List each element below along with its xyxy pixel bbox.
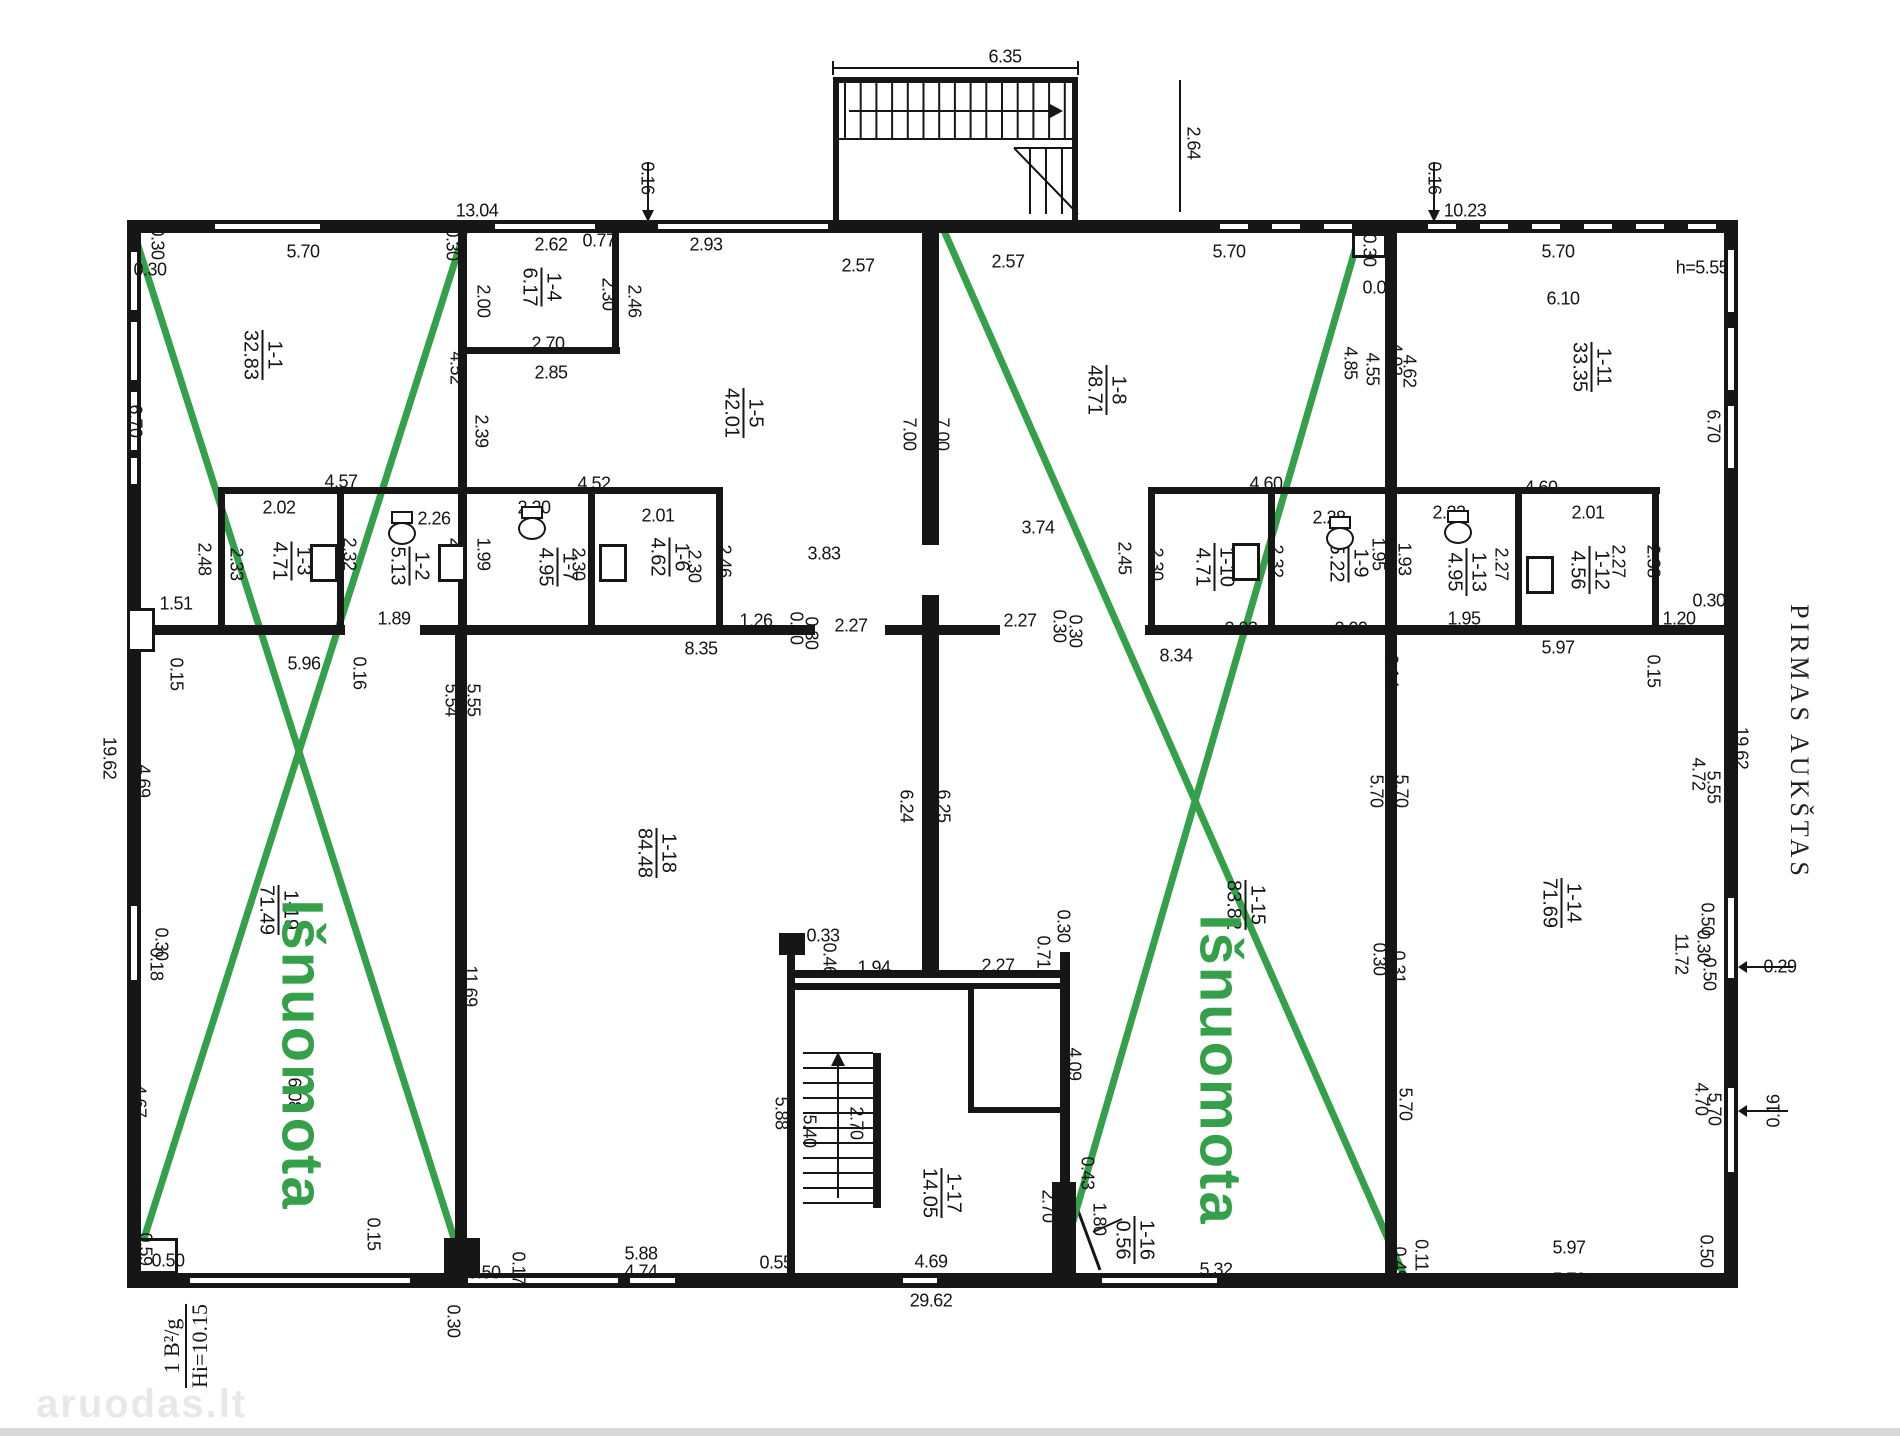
dimension-label: 0.30 — [1692, 591, 1725, 612]
dimension-label: 2.33 — [226, 547, 247, 580]
wall-segment — [1148, 487, 1660, 494]
room-number: 1-1 — [262, 330, 286, 380]
dimension-label: 6.24 — [896, 789, 917, 822]
dimension-label: 8.34 — [1159, 646, 1192, 667]
wall-segment — [873, 1053, 881, 1208]
window-segment — [1726, 1088, 1736, 1172]
wall-segment — [922, 233, 939, 545]
dimension-label: 2.46 — [714, 544, 735, 577]
dimension-label: 4.60 — [1524, 478, 1557, 499]
room-label: 1-134.95 — [1443, 548, 1490, 596]
plan-linework — [0, 0, 1900, 1436]
dimension-label: 0.71 — [1033, 935, 1054, 968]
dimension-label: 0.30 — [443, 1304, 464, 1337]
dimension-label: 2.85 — [534, 363, 567, 384]
dimension-label: 0.16 — [1424, 161, 1445, 194]
room-number: 1-16 — [1134, 1216, 1158, 1264]
dimension-label: 2.02 — [262, 498, 295, 519]
elevator-shaft — [968, 983, 1066, 1113]
dimension-label: 2.27 — [981, 956, 1014, 977]
window-segment — [1584, 222, 1612, 231]
room-area: 14.05 — [918, 1168, 941, 1218]
room-area: 4.95 — [534, 548, 557, 587]
window-segment — [495, 222, 595, 231]
dimension-label: 10.23 — [1444, 201, 1487, 222]
dimension-label: 1.20 — [1662, 609, 1695, 630]
room-label: 1-34.71 — [268, 542, 315, 581]
room-label: 1-1133.35 — [1568, 342, 1615, 392]
wall-segment — [455, 635, 467, 1273]
room-area: 0.56 — [1111, 1216, 1134, 1264]
room-area: 84.48 — [633, 828, 656, 878]
window-segment — [1324, 222, 1352, 231]
dimension-label: 2.70 — [1038, 1189, 1059, 1222]
room-area: 32.83 — [239, 330, 262, 380]
room-area: 4.56 — [1566, 546, 1589, 594]
dimension-label: 4.52 — [446, 351, 467, 384]
dimension-label: 0.14 — [1381, 654, 1402, 687]
dimension-label: 0.77 — [582, 231, 615, 252]
dimension-label: 2.01 — [641, 506, 674, 527]
room-label: 1-848.71 — [1083, 365, 1130, 415]
dimension-label: 4.69 — [914, 1252, 947, 1273]
room-label: 1-132.83 — [239, 330, 286, 380]
room-label: 1-1714.05 — [918, 1168, 965, 1218]
dimension-label: 2.03 — [1224, 619, 1257, 640]
dimension-label: 0.15 — [363, 1217, 384, 1250]
wall-segment — [1515, 487, 1522, 632]
dimension-label: 5.40 — [799, 1114, 820, 1147]
dimension-label: 0.50 — [1696, 1234, 1717, 1267]
dimension-label: 0.30 — [133, 260, 166, 281]
window-segment — [190, 1276, 410, 1285]
room-number: 1-17 — [941, 1168, 965, 1218]
dimension-label: 6.10 — [1546, 289, 1579, 310]
dimension-label: 5.88 — [771, 1096, 792, 1129]
dimension-label: 0.30 — [147, 226, 168, 259]
dimension-label: 5.54 — [441, 683, 462, 716]
wall-segment — [885, 625, 1000, 635]
dimension-label: 2.26 — [417, 509, 450, 530]
corner-note-top: 1 B²/g — [159, 1304, 187, 1388]
wall-segment — [127, 625, 345, 635]
dimension-label: 5.97 — [1541, 638, 1574, 659]
door-panel — [1526, 556, 1554, 594]
room-label: 1-160.56 — [1111, 1216, 1158, 1264]
window-segment — [1726, 406, 1736, 468]
dimension-label: 2.32 — [339, 537, 360, 570]
dimension-label: 5.70 — [286, 242, 319, 263]
room-number: 1-4 — [541, 268, 565, 307]
room-number: 1-18 — [656, 828, 680, 878]
dimension-label: 2.57 — [991, 252, 1024, 273]
dimension-label: 0.16 — [1764, 1094, 1785, 1127]
dimension-label: 1.94 — [857, 958, 890, 979]
dimension-label: 0.30 — [442, 227, 463, 260]
dimension-label: 2.46 — [624, 284, 645, 317]
dimension-label: 2.01 — [1571, 503, 1604, 524]
external-staircase-wall — [833, 77, 839, 223]
page-edge — [0, 1428, 1900, 1436]
dimension-label: 2.27 — [1491, 547, 1512, 580]
dimension-label: 0.11 — [1411, 1239, 1432, 1271]
dimension-label: 2.32 — [1266, 544, 1287, 577]
corner-note: 1 B²/g Hi=10.15 — [159, 1304, 213, 1388]
window-segment — [1532, 222, 1560, 231]
dimension-label: 1.95 — [1447, 609, 1480, 630]
toilet-icon — [1444, 510, 1472, 544]
wall-pier — [127, 608, 155, 652]
dimension-label: 0.50 — [151, 1251, 184, 1272]
dimension-label: 0.18 — [146, 947, 167, 980]
window-segment — [1480, 222, 1508, 231]
room-area: 6.17 — [518, 268, 541, 307]
window-segment — [129, 322, 139, 380]
room-label: 1-124.56 — [1566, 546, 1613, 594]
dimension-label: 5.70 — [1391, 774, 1412, 807]
dimension-label: 5.70 — [1212, 242, 1245, 263]
dimension-label: 1.80 — [1089, 1202, 1110, 1235]
door-panel — [310, 544, 338, 582]
wall-segment — [127, 220, 141, 1288]
dimension-label: 2.38 — [1643, 544, 1664, 577]
room-number: 1-12 — [1589, 546, 1613, 594]
room-label: 1-64.62 — [646, 538, 693, 577]
dimension-label: 4.85 — [1340, 346, 1361, 379]
room-number: 1-7 — [557, 548, 581, 587]
room-area: 4.71 — [1191, 543, 1214, 591]
dimension-label: 2.64 — [1183, 126, 1204, 159]
floor-title: PIRMAS AUKŠTAS — [1784, 604, 1814, 880]
room-number: 1-11 — [1591, 342, 1615, 392]
dimension-label: 4.60 — [1249, 474, 1282, 495]
dimension-label: 2.70 — [846, 1106, 867, 1139]
toilet-icon — [518, 506, 546, 540]
wall-segment — [218, 487, 225, 632]
dimension-label: 5.96 — [287, 654, 320, 675]
window-segment — [1726, 328, 1736, 390]
dimension-label: 5.70 — [1395, 1087, 1416, 1120]
room-area: 33.35 — [1568, 342, 1591, 392]
dimension-label: 1.26 — [739, 611, 772, 632]
room-number: 1-14 — [1561, 878, 1585, 928]
rented-text: Išnuomota — [269, 899, 336, 1210]
room-number: 1-13 — [1466, 548, 1490, 596]
dimension-label: 5.32 — [1199, 1260, 1232, 1281]
room-label: 1-1884.48 — [633, 828, 680, 878]
dimension-label: 2.39 — [471, 414, 492, 447]
dimension-label: 4.74 — [624, 1262, 657, 1283]
dimension-label: 4.09 — [1064, 1047, 1085, 1080]
dimension-label: 0.30 — [1359, 233, 1380, 266]
dimension-label: 2.45 — [1114, 541, 1135, 574]
window-segment — [215, 222, 320, 231]
dimension-label: 13.04 — [456, 201, 499, 222]
dimension-label: 1.93 — [1394, 542, 1415, 575]
dimension-label: 0.15 — [166, 657, 187, 690]
window-segment — [658, 222, 828, 231]
dimension-label: h=5.55 — [1676, 258, 1729, 279]
dimension-label: 4.69 — [133, 764, 154, 797]
window-segment — [1272, 222, 1300, 231]
dimension-label: 5.70 — [1366, 774, 1387, 807]
dimension-label: 2.30 — [1146, 547, 1167, 580]
window-segment — [1220, 222, 1248, 231]
dimension-label: 7.00 — [932, 417, 953, 450]
dimension-label: 2.09 — [1334, 619, 1367, 640]
dimension-label: 0.17 — [508, 1251, 529, 1284]
room-area: 71.69 — [1538, 878, 1561, 928]
room-area: 4.62 — [646, 538, 669, 577]
room-label: 1-25.13 — [386, 547, 433, 586]
dimension-label: 6.35 — [988, 47, 1021, 68]
dimension-label: 0.43 — [1077, 1156, 1098, 1189]
room-area: 42.01 — [720, 388, 743, 438]
room-label: 1-74.95 — [534, 548, 581, 587]
room-label: 1-542.01 — [720, 388, 767, 438]
dimension-label: 0.16 — [349, 656, 370, 689]
window-segment — [1726, 898, 1736, 978]
dimension-label: 2.27 — [1003, 611, 1036, 632]
room-area: 4.95 — [1443, 548, 1466, 596]
watermark: aruodas.lt — [36, 1382, 247, 1427]
dimension-label: 29.62 — [910, 1291, 953, 1312]
dimension-label: 19.62 — [1731, 727, 1752, 770]
toilet-icon — [1326, 516, 1354, 550]
dimension-label: 0.31 — [1388, 950, 1409, 983]
dimension-label: 5.55 — [1703, 770, 1724, 803]
dimension-label: 1.89 — [377, 609, 410, 630]
dimension-label: 3.74 — [1021, 518, 1054, 539]
dimension-label: 5.97 — [1552, 1238, 1585, 1259]
room-number: 1-5 — [743, 388, 767, 438]
rented-text: Išnuomota — [1187, 914, 1254, 1225]
dimension-label: 1.51 — [159, 594, 192, 615]
dimension-label: 0.46 — [819, 942, 840, 975]
dimension-label: 0.49 — [1389, 1246, 1410, 1279]
toilet-icon — [388, 511, 416, 545]
dimension-label: 3.83 — [807, 544, 840, 565]
dimension-label: 0.16 — [637, 161, 658, 194]
dimension-label: 7.00 — [899, 417, 920, 450]
dimension-label: 4.67 — [129, 1084, 150, 1117]
room-number: 1-6 — [669, 538, 693, 577]
dimension-label: 11.69 — [460, 965, 481, 1006]
wall-segment — [218, 487, 723, 494]
door-panel — [599, 544, 627, 582]
dimension-label: 0.30 — [1053, 909, 1074, 942]
dimension-label: 6.70 — [125, 404, 146, 437]
dimension-label: 1.99 — [473, 537, 494, 570]
room-area: 4.71 — [268, 542, 291, 581]
dimension-label: 2.48 — [194, 542, 215, 575]
room-number: 1-2 — [409, 547, 433, 586]
room-area: 5.13 — [386, 547, 409, 586]
dimension-label: 0.30 — [1065, 614, 1086, 647]
dimension-label: 4.55 — [1362, 352, 1383, 385]
dimension-label: 5.70 — [1704, 1092, 1725, 1125]
dimension-label: 4.62 — [1399, 354, 1420, 387]
dimension-label: 5.70 — [1541, 242, 1574, 263]
dimension-label: 2.57 — [841, 256, 874, 277]
room-area: 48.71 — [1083, 365, 1106, 415]
dimension-label: 0.55 — [759, 1253, 792, 1274]
window-segment — [1688, 222, 1716, 231]
dimension-label: 0.30 — [1369, 942, 1390, 975]
dimension-label: 2.30 — [598, 277, 619, 310]
door-panel — [438, 544, 466, 582]
room-label: 1-1471.69 — [1538, 878, 1585, 928]
external-staircase-wall — [833, 77, 1078, 83]
window-segment — [129, 458, 139, 484]
dimension-label: 0.30 — [801, 616, 822, 649]
floor-plan: PIRMAS AUKŠTAS 1 B²/g Hi=10.15 aruodas.l… — [0, 0, 1900, 1436]
dimension-label: 5.70 — [1552, 1270, 1585, 1291]
dimension-label: 2.62 — [534, 235, 567, 256]
window-segment — [903, 1276, 937, 1285]
dimension-label: 0.15 — [1643, 654, 1664, 687]
dimension-label: 2.93 — [689, 235, 722, 256]
window-segment — [1428, 222, 1456, 231]
dimension-label: 11.72 — [1671, 933, 1692, 974]
external-staircase-wall — [1072, 77, 1078, 223]
dimension-label: 19.62 — [99, 737, 120, 780]
dimension-label: 6.25 — [933, 789, 954, 822]
dimension-label: 8.35 — [684, 639, 717, 660]
wall-segment — [922, 595, 939, 977]
dimension-label: 5.55 — [463, 683, 484, 716]
dimension-label: 6.70 — [1703, 409, 1724, 442]
dimension-label: 2.27 — [834, 616, 867, 637]
corner-note-bottom: Hi=10.15 — [187, 1304, 213, 1388]
wall-segment — [588, 487, 595, 632]
door-panel — [1232, 543, 1260, 581]
dimension-label: 0.29 — [1763, 957, 1796, 978]
dimension-label: 4.57 — [324, 472, 357, 493]
dimension-label: 0.50 — [1699, 957, 1720, 990]
window-segment — [129, 906, 139, 980]
window-segment — [1636, 222, 1664, 231]
dimension-label: 2.00 — [473, 284, 494, 317]
room-label: 1-104.71 — [1191, 543, 1238, 591]
dimension-label: 0.07 — [1362, 278, 1395, 299]
dimension-label: 2.70 — [531, 334, 564, 355]
dimension-label: 4.52 — [577, 474, 610, 495]
dimension-label: 0.50 — [467, 1263, 500, 1284]
room-label: 1-46.17 — [518, 268, 565, 307]
room-number: 1-8 — [1106, 365, 1130, 415]
